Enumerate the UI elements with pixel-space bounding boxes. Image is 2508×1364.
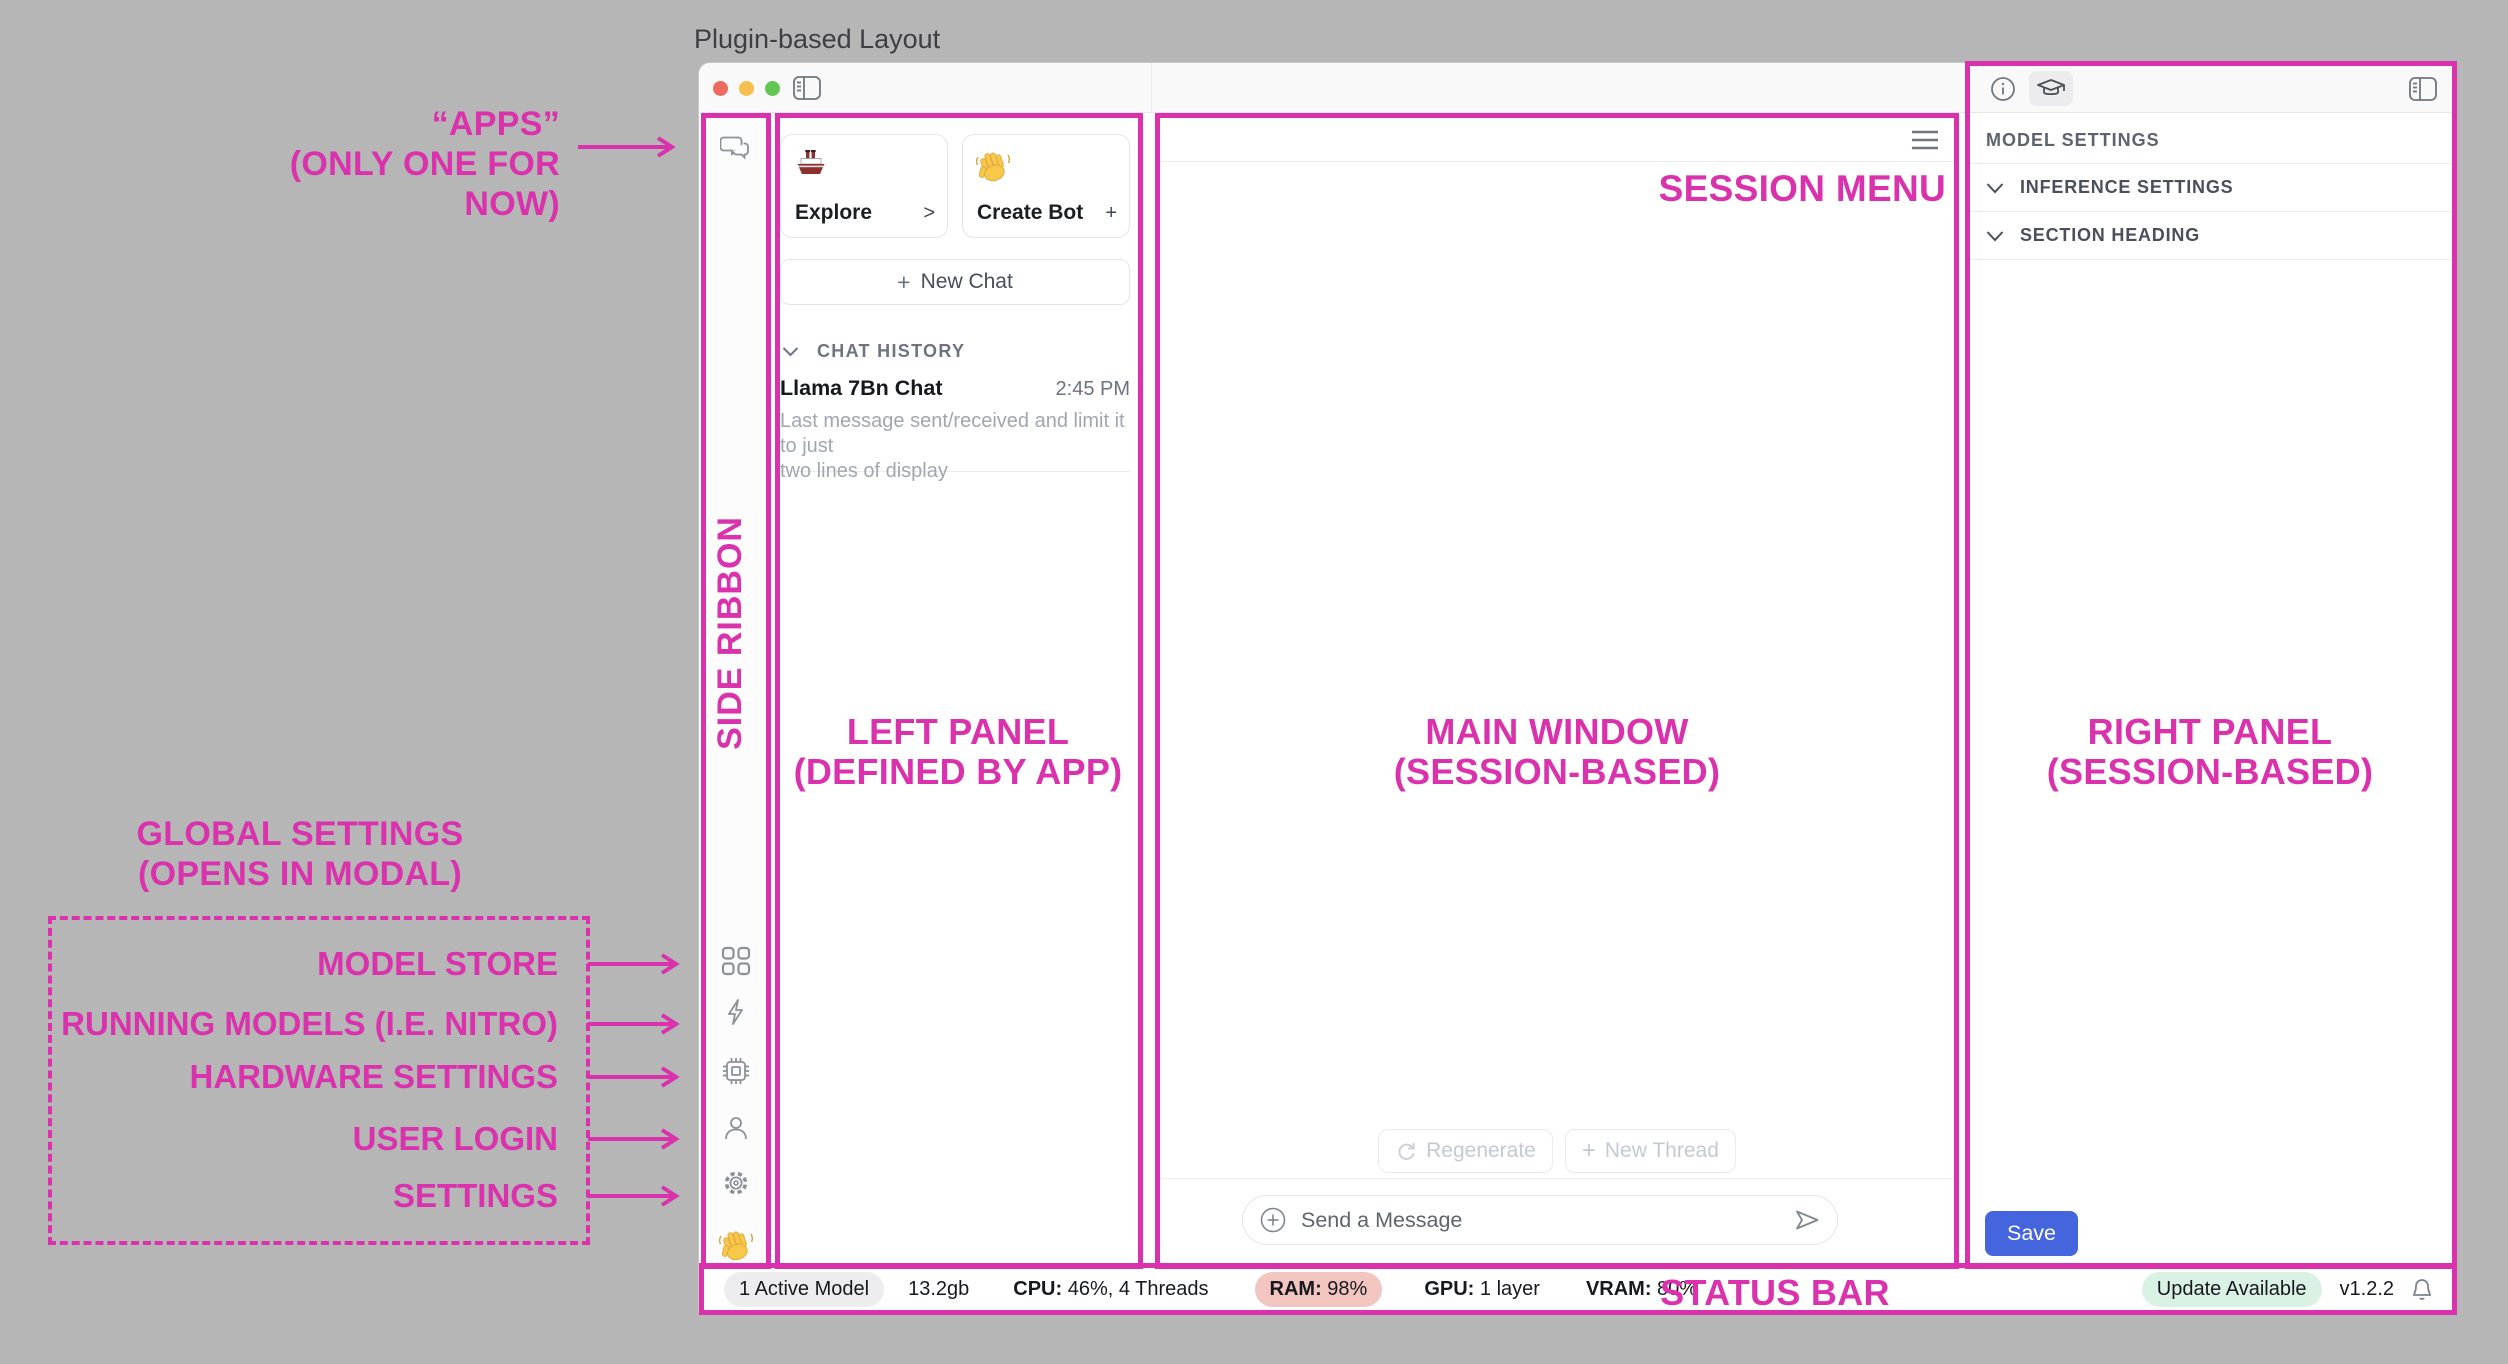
model-store-button[interactable] bbox=[721, 946, 751, 981]
left-panel: Explore > bbox=[780, 118, 1130, 1264]
composer-divider bbox=[1160, 1178, 1954, 1179]
chevron-down-icon bbox=[1986, 230, 2004, 242]
wave-hand-emoji bbox=[718, 1226, 754, 1262]
session-menu-annotation: SESSION MENU bbox=[1600, 168, 1946, 210]
plus-icon: + bbox=[1582, 1137, 1596, 1165]
section-heading-label: SECTION HEADING bbox=[2020, 225, 2200, 246]
hardware-settings-annotation: HARDWARE SETTINGS bbox=[60, 1058, 558, 1096]
chip-icon bbox=[721, 1056, 751, 1086]
section-heading-section[interactable]: SECTION HEADING bbox=[1970, 212, 2452, 260]
chat-list-item[interactable]: Llama 7Bn Chat 2:45 PM Last message sent… bbox=[780, 376, 1130, 472]
explore-card-chevron: > bbox=[923, 202, 935, 225]
grid-apps-icon bbox=[721, 946, 751, 976]
settings-annotation: SETTINGS bbox=[60, 1177, 558, 1215]
model-settings-label: MODEL SETTINGS bbox=[1986, 130, 2160, 151]
running-models-annotation: RUNNING MODELS (I.E. NITRO) bbox=[60, 1005, 558, 1043]
right-sidebar-toggle-icon[interactable] bbox=[2401, 71, 2445, 106]
info-tab-button[interactable] bbox=[1981, 71, 2025, 106]
regenerate-button[interactable]: Regenerate bbox=[1378, 1129, 1553, 1173]
refresh-icon bbox=[1395, 1140, 1417, 1162]
close-traffic-light[interactable] bbox=[713, 81, 728, 96]
memory-usage: 13.2gb bbox=[908, 1278, 969, 1301]
status-bar-annotation: STATUS BAR bbox=[1540, 1272, 2010, 1314]
chevron-down-icon bbox=[1986, 182, 2004, 194]
model-settings-tab-button[interactable] bbox=[2029, 71, 2073, 106]
right-panel-annotation: RIGHT PANEL (SESSION-BASED) bbox=[1964, 712, 2456, 792]
new-thread-label: New Thread bbox=[1605, 1139, 1719, 1163]
session-menu-button[interactable] bbox=[1910, 129, 1940, 156]
hardware-settings-arrow bbox=[588, 1064, 688, 1090]
right-panel-heading: MODEL SETTINGS bbox=[1970, 118, 2452, 164]
left-sidebar-toggle-icon[interactable] bbox=[793, 76, 821, 105]
ram-badge: RAM: 98% bbox=[1255, 1272, 1383, 1307]
active-model-badge: 1 Active Model bbox=[724, 1272, 884, 1307]
hardware-settings-button[interactable] bbox=[721, 1056, 751, 1091]
wave-hand-emoji bbox=[975, 147, 1011, 188]
gear-icon bbox=[721, 1168, 751, 1198]
main-window: Regenerate + New Thread bbox=[1160, 118, 1954, 1264]
model-store-annotation: MODEL STORE bbox=[60, 945, 558, 983]
bell-icon bbox=[2410, 1277, 2434, 1302]
chat-title: Llama 7Bn Chat bbox=[780, 376, 942, 401]
create-bot-card[interactable]: Create Bot + bbox=[962, 134, 1130, 238]
inference-settings-label: INFERENCE SETTINGS bbox=[2020, 177, 2233, 198]
message-input[interactable] bbox=[1301, 1208, 1779, 1233]
chat-app-button[interactable] bbox=[720, 134, 752, 167]
apps-arrow bbox=[576, 134, 684, 160]
model-store-arrow bbox=[588, 951, 688, 977]
canvas: Plugin-based Layout bbox=[0, 0, 2508, 1364]
chat-preview-line2: two lines of display bbox=[780, 460, 948, 482]
chat-preview-line1: Last message sent/received and limit it … bbox=[780, 410, 1125, 457]
create-bot-card-plus: + bbox=[1105, 202, 1117, 225]
running-models-arrow bbox=[588, 1011, 688, 1037]
gpu-status: GPU: 1 layer bbox=[1424, 1278, 1540, 1301]
notifications-button[interactable] bbox=[2410, 1277, 2434, 1302]
main-window-header bbox=[1160, 118, 1954, 162]
update-available-badge[interactable]: Update Available bbox=[2142, 1272, 2322, 1307]
save-button[interactable]: Save bbox=[1985, 1211, 2078, 1256]
send-icon[interactable] bbox=[1793, 1207, 1821, 1233]
plus-circle-icon[interactable] bbox=[1259, 1206, 1287, 1234]
chat-bubbles-icon bbox=[720, 134, 752, 162]
cpu-status: CPU: 46%, 4 Threads bbox=[1013, 1278, 1208, 1301]
graduation-cap-icon bbox=[2036, 77, 2066, 101]
user-icon bbox=[722, 1114, 750, 1142]
right-panel: MODEL SETTINGS INFERENCE SETTINGS SECTIO… bbox=[1970, 118, 2452, 1264]
new-chat-button[interactable]: + New Chat bbox=[780, 259, 1130, 305]
regenerate-label: Regenerate bbox=[1426, 1139, 1536, 1163]
settings-button[interactable] bbox=[721, 1168, 751, 1203]
explore-card[interactable]: Explore > bbox=[780, 134, 948, 238]
window-titlebar bbox=[699, 63, 2455, 113]
left-panel-annotation: LEFT PANEL (DEFINED BY APP) bbox=[774, 712, 1142, 792]
chevron-down-icon bbox=[782, 346, 799, 357]
new-chat-label: New Chat bbox=[921, 270, 1013, 294]
global-settings-annotation: GLOBAL SETTINGS (OPENS IN MODAL) bbox=[100, 814, 500, 894]
side-ribbon-annotation: SIDE RIBBON bbox=[711, 516, 750, 750]
minimize-traffic-light[interactable] bbox=[739, 81, 754, 96]
app-version: v1.2.2 bbox=[2340, 1278, 2394, 1301]
chat-time: 2:45 PM bbox=[1056, 378, 1130, 401]
new-thread-button[interactable]: + New Thread bbox=[1565, 1129, 1736, 1173]
chat-history-header[interactable]: CHAT HISTORY bbox=[782, 341, 965, 362]
maximize-traffic-light[interactable] bbox=[765, 81, 780, 96]
inference-settings-section[interactable]: INFERENCE SETTINGS bbox=[1970, 164, 2452, 212]
settings-arrow bbox=[588, 1183, 688, 1209]
user-login-button[interactable] bbox=[722, 1114, 750, 1147]
create-bot-card-label: Create Bot bbox=[977, 201, 1083, 225]
message-composer[interactable] bbox=[1242, 1195, 1838, 1245]
apps-annotation: “APPS” (ONLY ONE FOR NOW) bbox=[200, 104, 560, 224]
user-login-annotation: USER LOGIN bbox=[60, 1120, 558, 1158]
explore-card-label: Explore bbox=[795, 201, 872, 225]
lightning-icon bbox=[722, 998, 750, 1026]
ship-emoji bbox=[793, 147, 829, 186]
wave-app-button[interactable] bbox=[718, 1226, 754, 1267]
user-login-arrow bbox=[588, 1126, 688, 1152]
hamburger-menu-icon bbox=[1910, 129, 1940, 151]
chat-history-label: CHAT HISTORY bbox=[817, 341, 965, 362]
thread-actions: Regenerate + New Thread bbox=[1160, 1129, 1954, 1173]
main-window-annotation: MAIN WINDOW (SESSION-BASED) bbox=[1154, 712, 1960, 792]
running-models-button[interactable] bbox=[722, 998, 750, 1031]
plus-icon: + bbox=[897, 269, 910, 296]
page-title: Plugin-based Layout bbox=[694, 24, 940, 55]
titlebar-divider bbox=[1151, 63, 1152, 113]
app-cards: Explore > bbox=[780, 134, 1130, 238]
app-window: Explore > bbox=[698, 62, 2456, 1314]
info-icon bbox=[1990, 76, 2016, 102]
